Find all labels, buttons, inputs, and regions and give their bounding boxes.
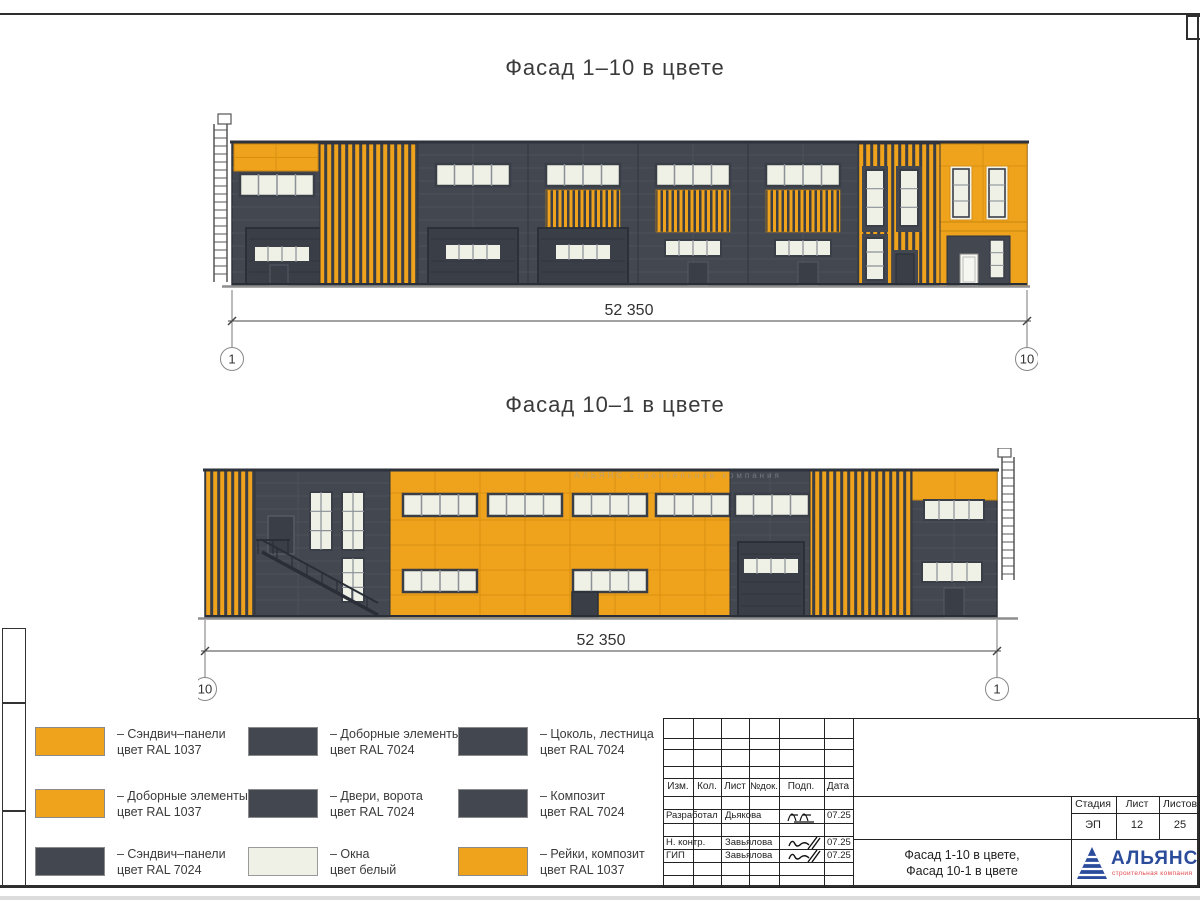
facade2-title: Фасад 10–1 в цвете [200, 392, 1030, 418]
legend-item: – Двери, воротацвет RAL 7024 [248, 789, 458, 823]
facade1-orange-end [940, 144, 1027, 285]
legend-item: – Цоколь, лестницацвет RAL 7024 [458, 727, 668, 761]
tb-header-data: Дата [827, 781, 849, 792]
facade1-slat-wall [320, 144, 418, 285]
tb-header-ndok: №док. [750, 781, 778, 792]
facade1-title: Фасад 1–10 в цвете [200, 55, 1030, 81]
title-block: Изм. Кол. Лист №док. Подп. Дата Разработ… [663, 718, 1200, 888]
facade1-drawing [200, 108, 1030, 293]
facade1-slat-tower [858, 144, 940, 285]
legend-swatch [248, 727, 318, 756]
legend-swatch [35, 847, 105, 876]
color-legend: – Сэндвич–панелицвет RAL 1037 – Доборные… [35, 727, 665, 885]
signature-gip [786, 848, 822, 863]
legend-swatch [458, 727, 528, 756]
legend-item: – Рейки, композитцвет RAL 1037 [458, 847, 668, 881]
facade2-gate-bay [735, 494, 809, 616]
facade1-dimension-value: 52 350 [605, 302, 654, 319]
tb-name-developer: Дьякова [725, 810, 761, 821]
tb-header-izm: Изм. [667, 781, 688, 792]
legend-item: – Доборные элементыцвет RAL 7024 [248, 727, 458, 761]
legend-swatch [458, 789, 528, 818]
facade2-slat-wall-mid [810, 470, 912, 617]
facade1-axis-left: 1 [221, 348, 244, 371]
tb-sheet-label: Лист [1126, 798, 1149, 810]
legend-item: – Окнацвет белый [248, 847, 458, 881]
tb-header-list: Лист [724, 781, 746, 792]
corner-stamp-box [1186, 15, 1200, 40]
tb-header-kol: Кол. [697, 781, 717, 792]
facade1-ladder-icon [214, 114, 231, 282]
facade2-drawing: АЛЬЯНС строительная компания [198, 448, 1028, 633]
legend-item: – Сэндвич–панелицвет RAL 7024 [35, 847, 245, 881]
legend-swatch [35, 727, 105, 756]
facade1-axis-right: 10 [1016, 348, 1039, 371]
tb-role-ncontrol: Н. контр. [666, 837, 705, 848]
logo-name: АЛЬЯНС [1111, 848, 1198, 870]
facade2-axis-left: 10 [198, 678, 217, 701]
facade2-dimension-value: 52 350 [577, 632, 626, 649]
tb-stage-value: ЭП [1085, 819, 1101, 831]
facade2-axis-right: 1 [986, 678, 1009, 701]
tb-name-gip: Завьялова [725, 850, 772, 861]
tb-role-gip: ГИП [666, 850, 685, 861]
logo-pyramid-icon [1077, 847, 1107, 879]
drawing-sheet: { "colors": { "ral1037": "#EFA21C", "ral… [0, 0, 1200, 900]
tb-date-developer: 07.25 [827, 810, 851, 821]
tb-sheets-value: 25 [1174, 819, 1186, 831]
frame-top [0, 13, 1200, 15]
tb-sheets-label: Листов [1163, 798, 1197, 810]
tb-role-developer: Разработал [666, 810, 718, 821]
facade1-dimension: 52 350 1 10 [198, 288, 1038, 380]
margin-boxes [2, 628, 26, 886]
facade2-dimension: 52 350 10 1 [198, 618, 1038, 710]
tb-date-ncontrol: 07.25 [827, 837, 851, 848]
svg-text:1: 1 [993, 682, 1000, 697]
svg-text:10: 10 [1020, 352, 1034, 367]
svg-text:10: 10 [198, 682, 212, 697]
legend-swatch [458, 847, 528, 876]
logo-subtitle: строительная компания [1112, 870, 1192, 877]
legend-swatch [248, 847, 318, 876]
facade2-slat-wall-left [205, 470, 255, 617]
facade2-watermark: АЛЬЯНС строительная компания [574, 471, 782, 480]
tb-sheet-value: 12 [1131, 819, 1143, 831]
tb-sheet-title: Фасад 1-10 в цвете, Фасад 10-1 в цвете [853, 839, 1071, 887]
legend-swatch [248, 789, 318, 818]
tb-date-gip: 07.25 [827, 850, 851, 861]
svg-text:1: 1 [228, 352, 235, 367]
facade2-ladder-icon [998, 448, 1014, 580]
tb-header-podp: Подп. [788, 781, 815, 792]
company-logo: АЛЬЯНС строительная компания [1071, 839, 1200, 887]
tb-stage-label: Стадия [1075, 798, 1111, 810]
legend-item: – Доборные элементыцвет RAL 1037 [35, 789, 245, 823]
legend-item: – Сэндвич–панелицвет RAL 1037 [35, 727, 245, 761]
legend-swatch [35, 789, 105, 818]
tb-name-ncontrol: Завьялова [725, 837, 772, 848]
sheet-edge-shadow [0, 896, 1200, 900]
facade2-orange-hall: АЛЬЯНС строительная компания [390, 470, 782, 617]
signature-developer [784, 803, 822, 825]
legend-item: – Композитцвет RAL 7024 [458, 789, 668, 823]
